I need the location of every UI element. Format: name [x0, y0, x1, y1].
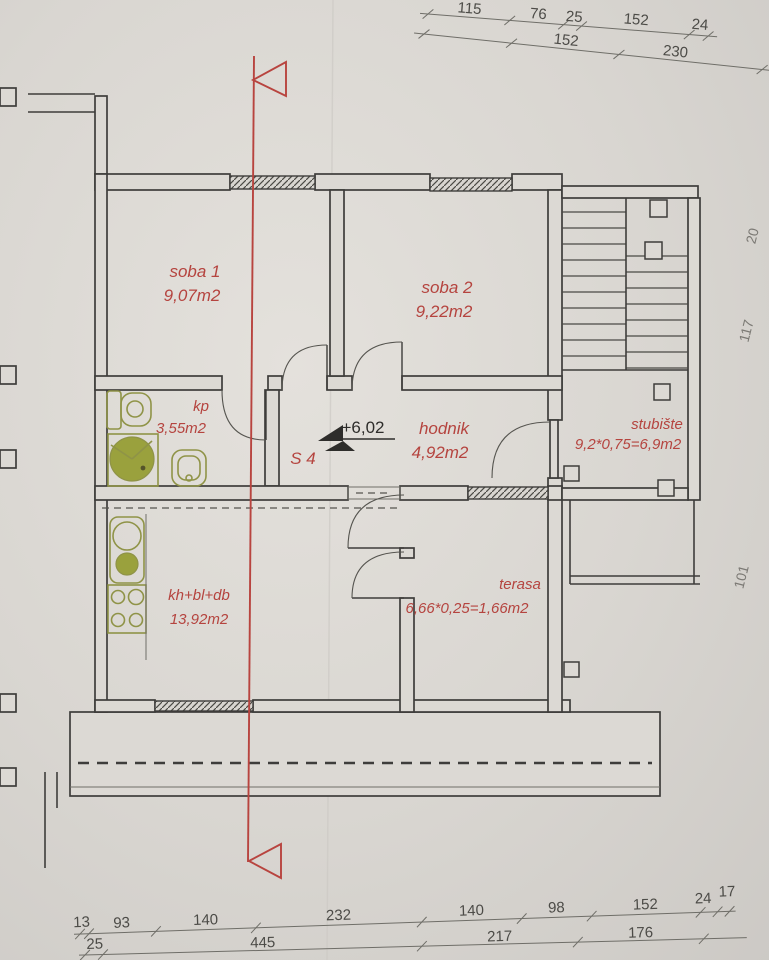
room-label-hodnik: hodnik [419, 419, 471, 438]
dim-bottom: 98 [548, 899, 565, 917]
dim-bottom: 24 [695, 890, 712, 908]
window-soba2 [430, 178, 512, 191]
room-area-kp: 3,55m2 [156, 420, 207, 437]
room-area-stubiste: 9,2*0,75=6,9m2 [575, 436, 682, 453]
room-area-kuhinja: 13,92m2 [170, 611, 229, 628]
room-label-kp: kp [193, 398, 209, 415]
room-area-soba1: 9,07m2 [164, 286, 221, 305]
dim-top: 115 [457, 0, 482, 18]
dim-bottom: 232 [326, 907, 352, 925]
section-label: S 4 [290, 449, 316, 468]
dim-bottom: 445 [250, 934, 275, 952]
balcony-strip [70, 712, 660, 796]
dim-bottom: 217 [487, 928, 512, 946]
floor-plan-drawing: +6,02 soba 1 9,07m2 soba 2 9,22m2 kp 3,5… [0, 0, 769, 960]
room-label-stubiste: stubište [631, 416, 683, 433]
dim-bottom: 176 [628, 924, 653, 942]
dim-top: 24 [691, 16, 709, 34]
room-label-soba2: soba 2 [421, 278, 473, 297]
dim-bottom: 13 [73, 914, 90, 932]
dim-top: 25 [565, 8, 583, 26]
room-label-terasa: terasa [499, 576, 541, 593]
dim-bottom: 140 [193, 911, 219, 929]
room-area-terasa: 6,66*0,25=1,66m2 [405, 600, 529, 617]
dim-top: 152 [553, 31, 580, 51]
dim-bottom: 93 [113, 914, 130, 932]
floor-plan-photo: +6,02 soba 1 9,07m2 soba 2 9,22m2 kp 3,5… [0, 0, 769, 960]
dim-bottom: 17 [718, 883, 735, 901]
dim-top: 230 [662, 42, 689, 62]
window-kitchen [155, 701, 253, 711]
dim-bottom: 152 [633, 896, 659, 914]
dim-top: 152 [623, 10, 649, 29]
dim-bottom: 140 [459, 902, 485, 920]
room-area-soba2: 9,22m2 [416, 302, 473, 321]
dim-bottom: 25 [86, 936, 103, 953]
window-soba1 [230, 176, 315, 189]
room-label-kuhinja: kh+bl+db [168, 587, 230, 604]
elevation-value: +6,02 [341, 418, 384, 437]
paper-background [0, 0, 769, 960]
room-area-hodnik: 4,92m2 [412, 443, 469, 462]
room-label-soba1: soba 1 [169, 262, 220, 281]
dim-top: 76 [529, 5, 547, 23]
window-terasa [468, 487, 548, 499]
